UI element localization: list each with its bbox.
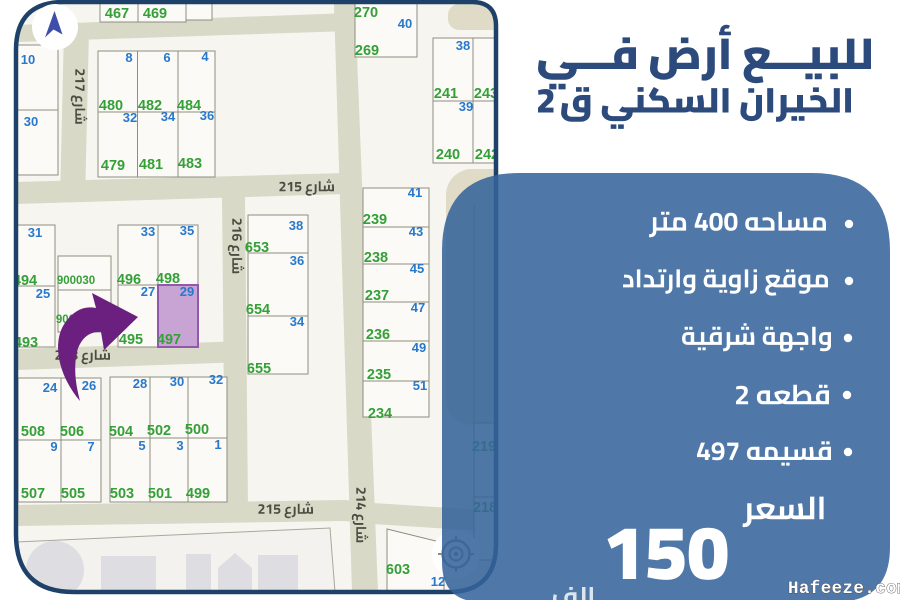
svg-text:467: 467 [105, 6, 129, 22]
svg-text:40: 40 [398, 16, 412, 31]
svg-text:12: 12 [431, 574, 445, 589]
svg-text:33: 33 [141, 224, 155, 239]
svg-text:8: 8 [125, 50, 132, 65]
svg-text:6: 6 [163, 50, 170, 65]
svg-text:32: 32 [123, 110, 137, 125]
svg-text:34: 34 [290, 314, 305, 329]
svg-text:654: 654 [246, 302, 270, 318]
svg-text:507: 507 [21, 486, 45, 502]
svg-text:235: 235 [367, 367, 391, 383]
svg-text:47: 47 [411, 300, 425, 315]
svg-text:479: 479 [101, 158, 125, 174]
svg-text:237: 237 [365, 288, 389, 304]
svg-text:484: 484 [177, 98, 201, 114]
svg-text:32: 32 [209, 372, 223, 387]
svg-text:239: 239 [363, 212, 387, 228]
svg-text:28: 28 [133, 376, 147, 391]
svg-text:900030: 900030 [57, 275, 95, 287]
svg-text:501: 501 [148, 486, 172, 502]
svg-text:238: 238 [364, 250, 388, 266]
svg-text:7: 7 [87, 439, 94, 454]
svg-text:26: 26 [82, 378, 96, 393]
svg-text:236: 236 [366, 327, 390, 343]
svg-text:1: 1 [214, 437, 221, 452]
svg-text:36: 36 [290, 253, 304, 268]
svg-text:4: 4 [201, 49, 209, 64]
svg-text:24: 24 [43, 380, 58, 395]
svg-text:27: 27 [141, 284, 155, 299]
svg-text:41: 41 [408, 185, 422, 200]
svg-text:497: 497 [157, 332, 181, 348]
svg-text:502: 502 [147, 423, 171, 439]
svg-text:483: 483 [178, 156, 202, 172]
svg-text:653: 653 [245, 240, 269, 256]
svg-text:496: 496 [117, 272, 141, 288]
svg-text:10: 10 [21, 52, 35, 67]
svg-text:51: 51 [413, 378, 427, 393]
svg-text:508: 508 [21, 424, 45, 440]
svg-text:481: 481 [139, 157, 163, 173]
svg-text:505: 505 [61, 486, 85, 502]
svg-text:Hafeeze.com: Hafeeze.com [788, 579, 900, 599]
svg-text:39: 39 [459, 99, 473, 114]
svg-text:30: 30 [170, 374, 184, 389]
svg-text:504: 504 [109, 424, 133, 440]
svg-text:29: 29 [180, 284, 194, 299]
svg-text:499: 499 [186, 486, 210, 502]
svg-text:480: 480 [99, 98, 123, 114]
svg-text:234: 234 [368, 406, 392, 422]
svg-text:45: 45 [410, 261, 424, 276]
svg-text:506: 506 [60, 424, 84, 440]
svg-text:3: 3 [176, 438, 183, 453]
svg-text:9: 9 [50, 439, 57, 454]
svg-text:25: 25 [36, 286, 50, 301]
svg-text:241: 241 [434, 86, 458, 102]
svg-text:495: 495 [119, 332, 143, 348]
svg-text:34: 34 [161, 109, 176, 124]
svg-text:469: 469 [143, 6, 167, 22]
svg-text:30: 30 [24, 114, 38, 129]
svg-text:603: 603 [386, 562, 410, 578]
svg-text:240: 240 [436, 147, 460, 163]
svg-text:482: 482 [138, 98, 162, 114]
svg-text:269: 269 [355, 43, 379, 59]
svg-text:38: 38 [456, 38, 470, 53]
svg-text:31: 31 [28, 225, 42, 240]
svg-text:35: 35 [180, 223, 194, 238]
svg-text:500: 500 [185, 422, 209, 438]
svg-text:655: 655 [247, 361, 271, 377]
svg-text:503: 503 [110, 486, 134, 502]
svg-text:270: 270 [354, 5, 378, 21]
svg-text:43: 43 [409, 224, 423, 239]
svg-text:38: 38 [289, 218, 303, 233]
svg-text:49: 49 [412, 340, 426, 355]
svg-text:36: 36 [200, 108, 214, 123]
svg-text:5: 5 [138, 438, 145, 453]
